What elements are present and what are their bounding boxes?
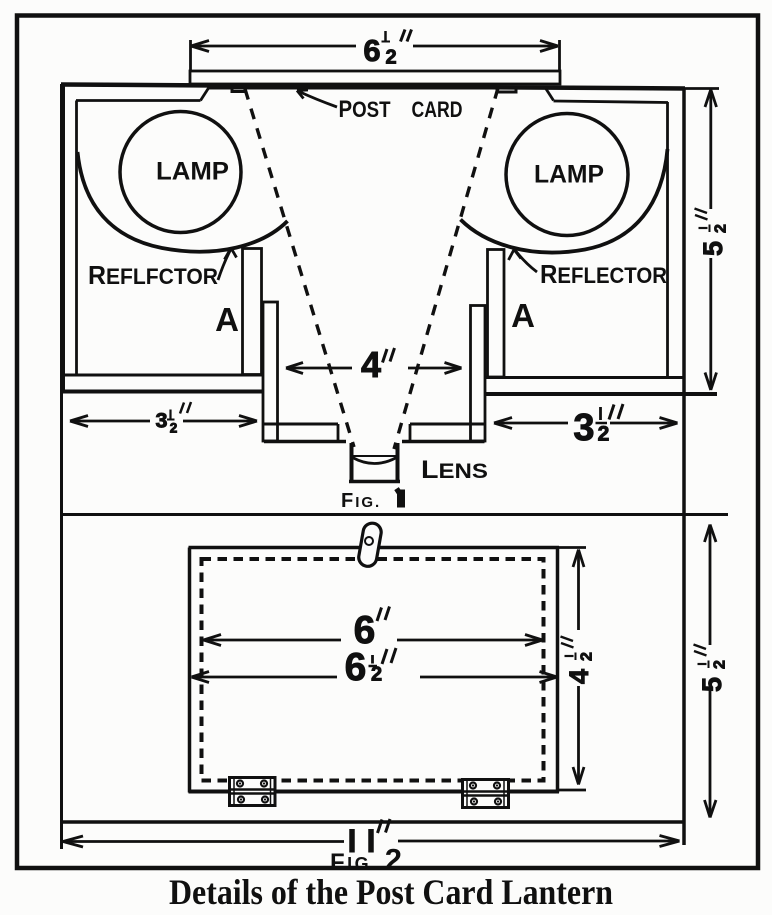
svg-text:LAMP: LAMP [156,158,229,186]
svg-text:CARD: CARD [412,97,463,122]
svg-text:2: 2 [579,652,596,661]
svg-text:2: 2 [713,224,730,233]
svg-text:A: A [511,297,535,334]
svg-text:5: 5 [698,241,728,256]
svg-text:4: 4 [361,344,381,385]
svg-text:3: 3 [156,409,168,433]
svg-text:2: 2 [712,660,729,669]
svg-text:A: A [215,301,239,338]
svg-text:2: 2 [598,423,610,446]
svg-text:5: 5 [697,677,727,692]
svg-text:POST: POST [339,96,391,123]
svg-text:FIG.: FIG. [341,490,381,512]
svg-text:REFLFCTOR: REFLFCTOR [88,260,218,290]
svg-text:2: 2 [170,421,178,436]
svg-text:6: 6 [345,646,367,689]
svg-text:6: 6 [363,33,380,68]
svg-text:LENS: LENS [421,456,488,484]
svg-text:2: 2 [371,664,382,686]
svg-text:2: 2 [385,47,396,69]
svg-text:REFLECTOR: REFLECTOR [540,259,667,289]
svg-text:Details of the Post Card Lante: Details of the Post Card Lantern [169,872,613,912]
svg-text:3: 3 [573,407,594,449]
svg-text:LAMP: LAMP [534,161,604,189]
svg-text:4: 4 [564,669,594,684]
